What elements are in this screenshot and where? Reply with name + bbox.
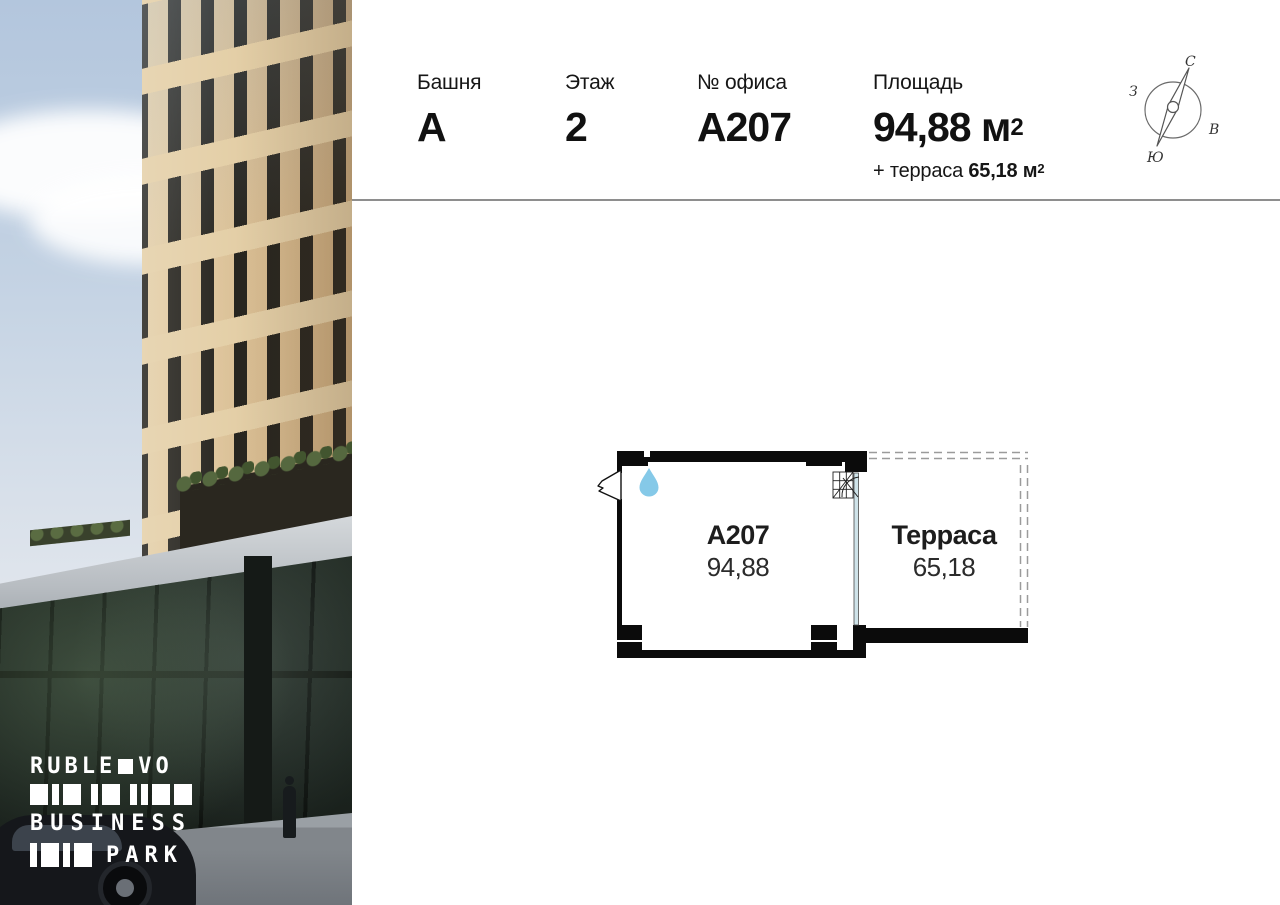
header-tower-column: Башня А xyxy=(417,71,481,151)
area-number: 94,88 xyxy=(873,104,971,150)
tower-label: Башня xyxy=(417,71,481,95)
terrace-unit: м xyxy=(1017,160,1037,182)
wall-notch xyxy=(644,450,650,457)
area-unit-sup: 2 xyxy=(1010,114,1023,141)
logo-barcode-row-2 xyxy=(30,843,94,867)
floor-value: 2 xyxy=(565,104,614,151)
header-divider-line xyxy=(352,199,1280,201)
area-value: 94,88 м2 xyxy=(873,104,1044,151)
terrace-area-line: + терраса 65,18 м2 xyxy=(873,160,1044,183)
room-number-label: А207 xyxy=(707,520,770,550)
entrance-door-icon xyxy=(598,470,621,501)
logo-word-vo: VO xyxy=(138,754,173,779)
logo-line-1: RUBLE VO xyxy=(30,753,214,779)
rublevo-business-park-logo: RUBLE VO BUSINESS xyxy=(30,753,214,868)
logo-word-business: BUSINESS xyxy=(30,811,214,837)
floor-label: Этаж xyxy=(565,71,614,95)
pedestrian-silhouette xyxy=(283,786,296,838)
roof-plants-left xyxy=(30,520,130,547)
water-drop-icon xyxy=(640,468,659,497)
shaft-hatch-box xyxy=(833,472,853,498)
terrace-number: 65,18 xyxy=(968,160,1017,182)
logo-barcode-row-1 xyxy=(30,784,202,805)
compass-east-label: В xyxy=(1208,122,1219,138)
compass-west-label: З xyxy=(1129,84,1138,100)
logo-word-ruble: RUBLE xyxy=(30,754,116,779)
header-office-column: № офиса А207 xyxy=(697,71,791,151)
compass-rose: С З В Ю xyxy=(1125,48,1245,173)
terrace-label: Терраса xyxy=(891,520,998,550)
header-area-column: Площадь 94,88 м2 + терраса 65,18 м2 xyxy=(873,71,1044,183)
logo-square-glyph xyxy=(118,759,133,774)
office-number-label: № офиса xyxy=(697,71,791,95)
compass-hub xyxy=(1168,102,1179,113)
compass-south-label: Ю xyxy=(1146,150,1164,166)
building-photo: RUBLE VO BUSINESS xyxy=(0,0,352,905)
room-area-label: 94,88 xyxy=(707,552,770,582)
terrace-prefix: + терраса xyxy=(873,160,968,182)
column-joint-line xyxy=(810,640,838,642)
brochure-page: RUBLE VO BUSINESS xyxy=(0,0,1280,905)
office-number-value: А207 xyxy=(697,104,791,151)
tower-value: А xyxy=(417,104,481,151)
header-floor-column: Этаж 2 xyxy=(565,71,614,151)
area-unit: м xyxy=(971,104,1011,150)
logo-word-park: PARK xyxy=(106,843,183,868)
area-label: Площадь xyxy=(873,71,1044,95)
terrace-unit-sup: 2 xyxy=(1037,161,1044,176)
column-joint-line xyxy=(616,640,643,642)
glass-wall xyxy=(854,473,859,625)
terrace-area-label: 65,18 xyxy=(913,552,976,582)
floor-plan: А207 94,88 Терраса 65,18 xyxy=(590,438,1040,673)
compass-north-label: С xyxy=(1185,54,1196,70)
